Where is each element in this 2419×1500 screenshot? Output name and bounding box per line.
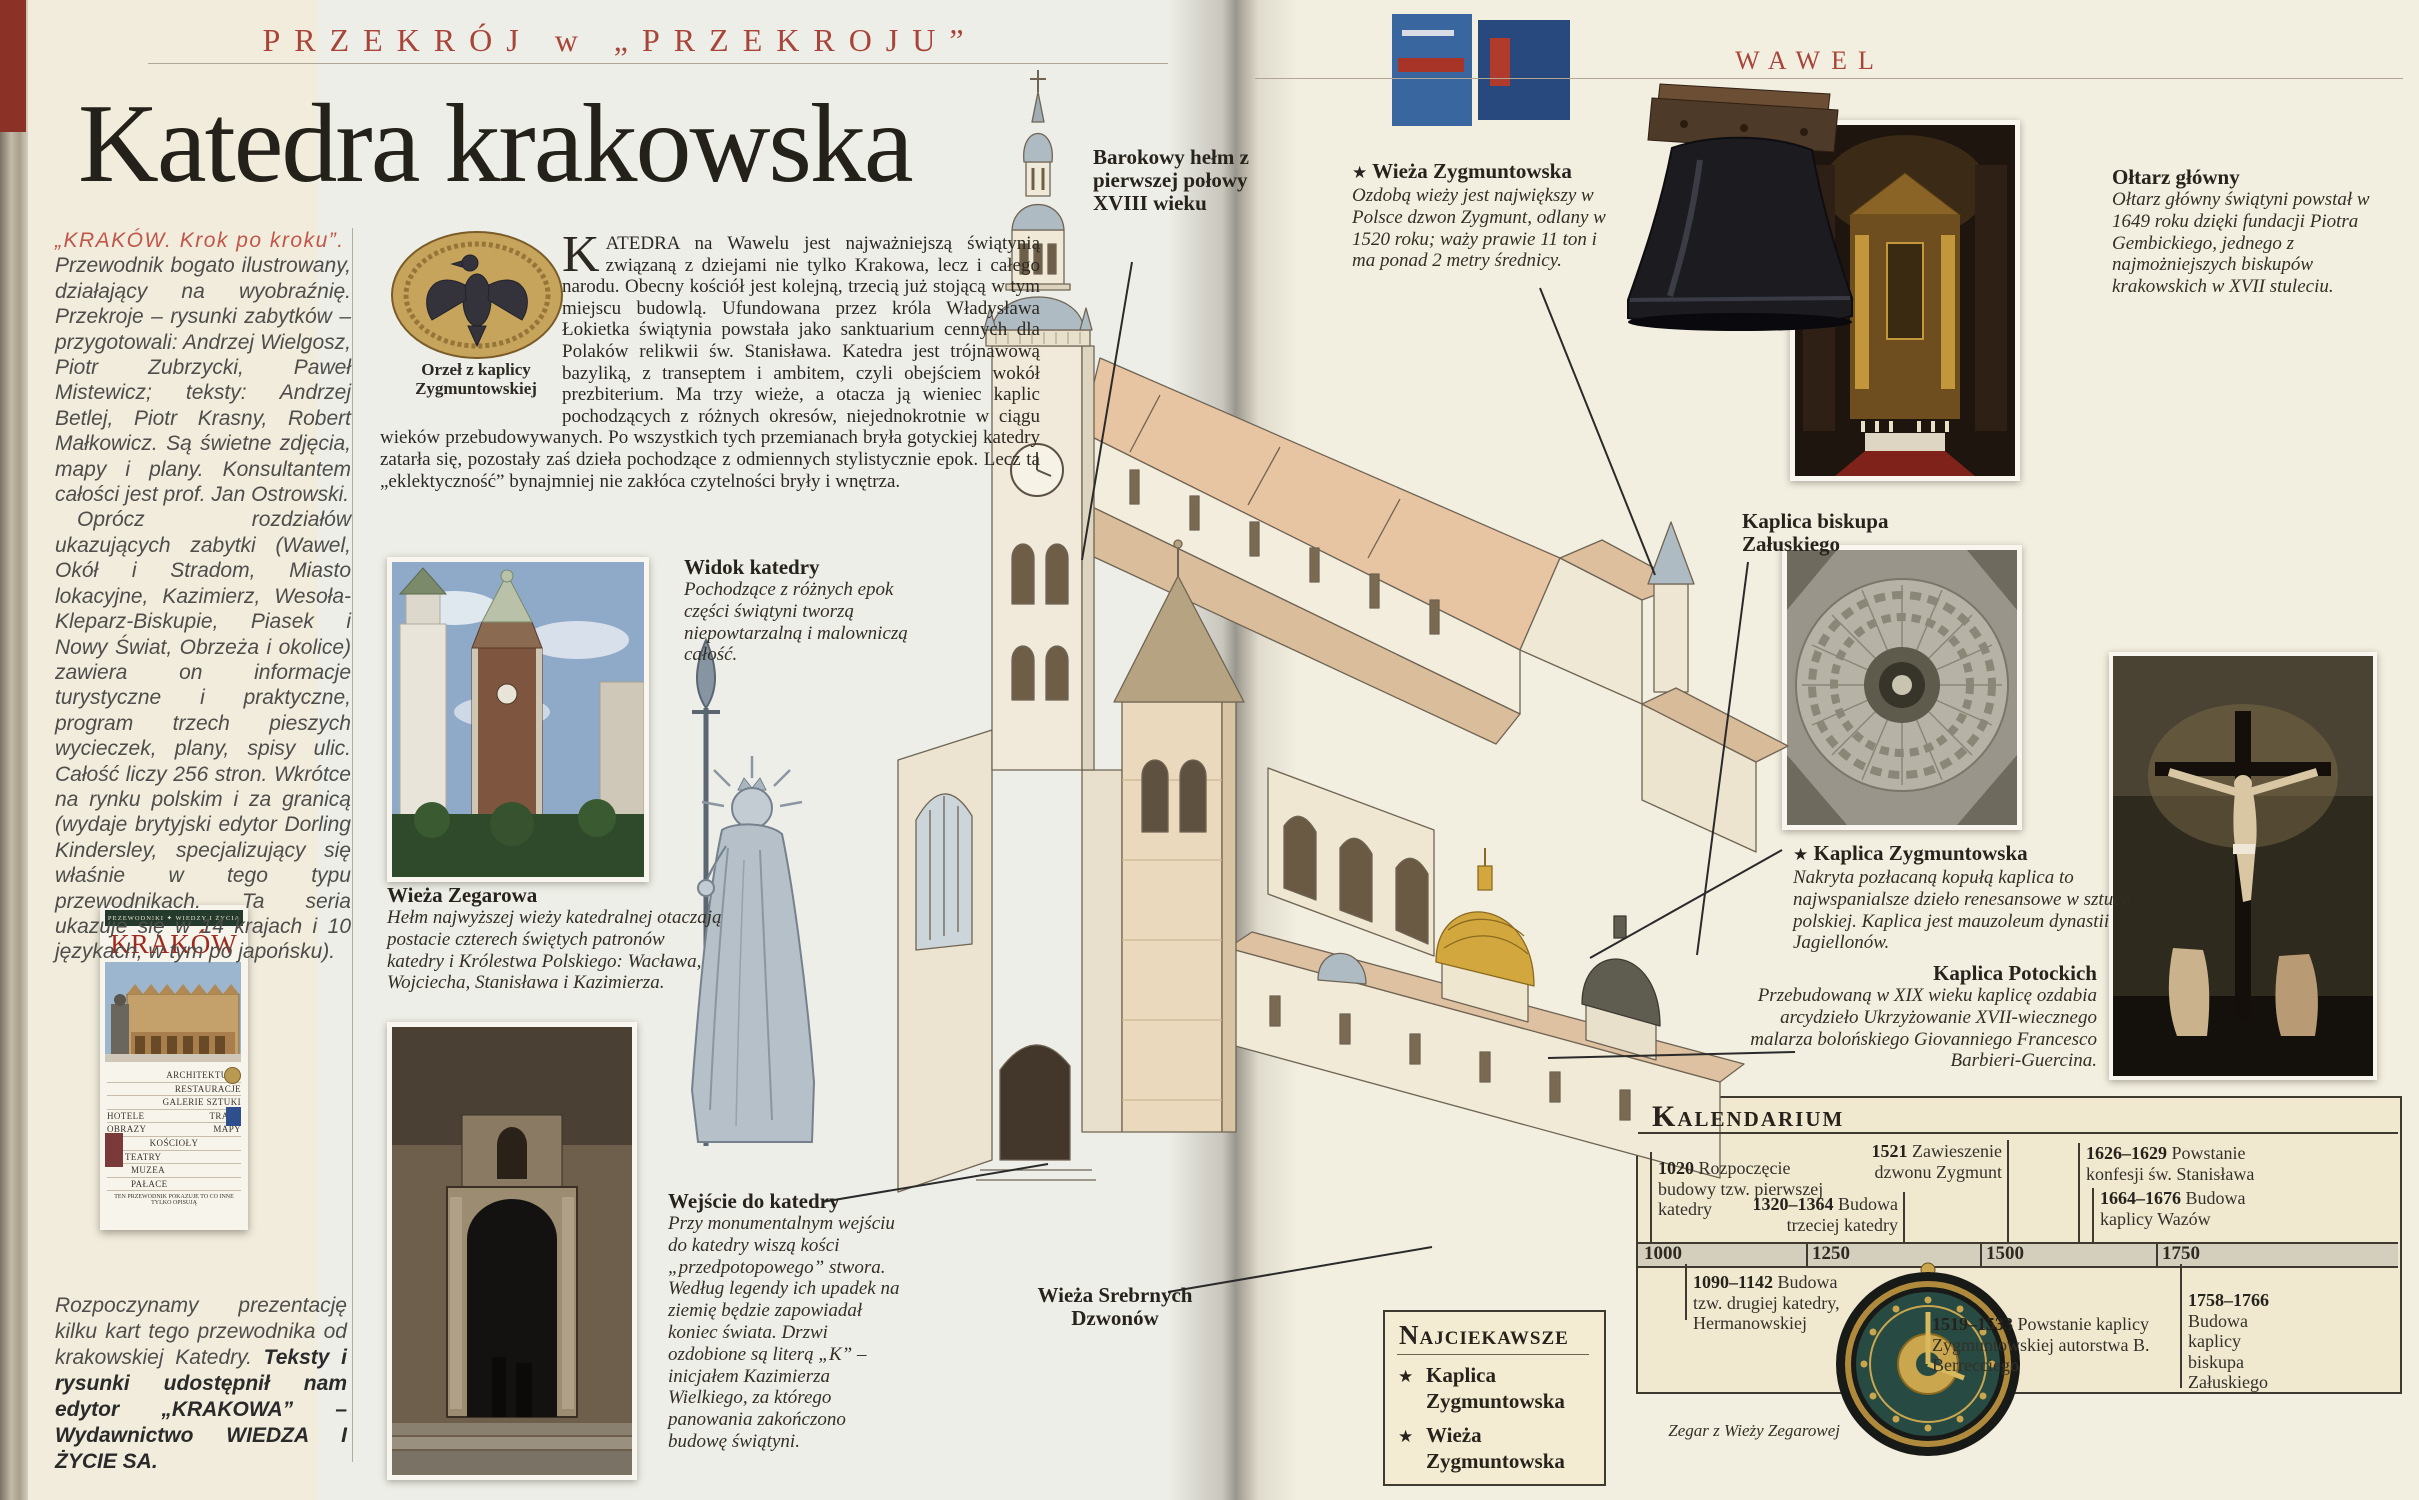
najciekawsze-title: Najciekawsze [1399,1320,1589,1351]
timeline-event: 1320–1364 Budowa trzeciej katedry [1740,1194,1898,1235]
coin-icon [224,1067,241,1084]
masthead-rule-right [1255,78,2403,79]
caption-body: Hełm najwyższej wieży katedralnej otacza… [387,907,722,994]
star-icon: ★ [1398,1362,1413,1390]
photo-cathedral-view [387,557,649,882]
caption-title: Barokowy hełm z pierwszej połowy XVIII w… [1093,146,1258,215]
timeline-divider [2156,1242,2158,1268]
caption-body: Zegar z Wieży Zegarowej [1640,1420,1840,1442]
star-icon: ★ [1398,1422,1413,1450]
caption-kaplica-potockich: Kaplica Potockich Przebudowaną w XIX wie… [1745,962,2097,1072]
cover-keyword: TEATRY [125,1151,161,1164]
timeline-event: 1519–1533 Powstanie kaplicy Zygmuntowski… [1932,1314,2160,1376]
page-bleed-fragment [1398,58,1464,72]
center-fold-shadow [1168,0,1298,1500]
cover-keyword: KOŚCIOŁY [150,1137,199,1150]
caption-wieza-zegarowa: Wieża Zegarowa Hełm najwyższej wieży kat… [387,884,722,994]
caption-wejscie: Wejście do katedry Przy monumentalnym we… [668,1190,903,1453]
painting-icon [105,1133,123,1167]
caption-body: Ozdobą wieży jest największy w Polsce dz… [1352,185,1607,272]
caption-oltarz-glowny: Ołtarz główny Ołtarz główny świątyni pow… [2112,166,2404,298]
drop-cap: K [562,233,606,276]
timeline-divider [1980,1242,1982,1268]
book-cover-photo [105,962,241,1062]
caption-body: Pochodzące z różnych epok części świątyn… [684,579,912,666]
caption-title: Ołtarz główny [2112,166,2404,189]
najciekawsze-item: Wieża Zygmuntowska [1426,1422,1576,1474]
timeline-tick [1903,1192,1905,1242]
caption-title: ★ Kaplica Zygmuntowska [1793,842,2138,867]
review-column: „KRAKÓW. Krok po kroku”. Przewodnik boga… [55,228,351,965]
timeline-tick [1650,1152,1652,1242]
timeline-year: 1250 [1812,1243,1850,1265]
page-bleed-fragment [1402,30,1454,36]
page-edge-left [0,0,28,1500]
timeline-divider [1806,1242,1808,1268]
book-cover-tagline: TEN PRZEWODNIK POKAZUJE TO CO INNE TYLKO… [105,1191,243,1206]
najciekawsze-item: Kaplica Zygmuntowska [1426,1362,1576,1414]
timeline-event: 1664–1676 Budowa kaplicy Wazów [2100,1188,2262,1229]
timeline-event: 1090–1142 Budowa tzw. drugiej katedry, H… [1693,1272,1861,1334]
masthead-left: PRZEKRÓJ w „PRZEKROJU” [150,22,1090,59]
timeline-tick [2078,1143,2080,1242]
timeline-year: 1500 [1986,1243,2024,1265]
magazine-spread: PRZEKRÓJ w „PRZEKROJU” WAWEL Katedra kra… [0,0,2419,1500]
najciekawsze-rule [1397,1354,1589,1355]
caption-body: Przy monumentalnym wejściu do katedry wi… [668,1213,903,1453]
timeline-event: 1521 Zawieszenie dzwonu Zygmunt [1856,1141,2002,1182]
review-paragraph: Przewodnik bogato ilustrowany, działając… [55,253,351,507]
caption-wieza-srebrnych: Wieża Srebrnych Dzwonów [1035,1284,1195,1330]
caption-title: Wieża Zegarowa [387,884,722,907]
caption-title: ★ Wieża Zygmuntowska [1352,160,1607,185]
caption-barokowy-helm: Barokowy hełm z pierwszej połowy XVIII w… [1093,146,1258,215]
timeline-tick [1685,1264,1687,1320]
photo-crucifixion-painting [2109,652,2377,1080]
kalendarium-rule [1638,1132,2398,1134]
book-cover-keywords: ARCHITEKTURA RESTAURACJE GALERIE SZTUKI … [105,1067,243,1191]
review-footer: Rozpoczynamy prezentację kilku kart tego… [55,1293,347,1475]
caption-kaplica-zaluskiego: Kaplica biskupa Załuskiego [1742,510,1977,556]
photo-cathedral-entrance [387,1022,637,1480]
caption-title: Wieża Srebrnych Dzwonów [1035,1284,1195,1330]
column-divider-rule [352,228,353,1462]
timeline-tick [2092,1188,2094,1242]
photo-main-altar [1790,120,2020,481]
caption-wieza-zygmuntowska: ★ Wieża Zygmuntowska Ozdobą wieży jest n… [1352,160,1607,272]
masthead-rule-left [148,63,1168,64]
caption-body: Nakryta pozłacaną kopułą kaplica to najw… [1793,867,2138,954]
cover-keyword: MUZEA [131,1164,165,1177]
cover-keyword: PAŁACE [131,1178,168,1191]
caption-widok-katedry: Widok katedry Pochodzące z różnych epok … [684,556,912,666]
masthead-right: WAWEL [1685,46,1935,76]
caption-eagle: Orzeł z kaplicy Zygmuntowskiej [394,360,558,398]
caption-body: Przebudowaną w XIX wieku kaplicę ozdabia… [1745,985,2097,1072]
cover-keyword: HOTELE [107,1110,144,1123]
caption-zegar: Zegar z Wieży Zegarowej [1640,1420,1840,1442]
review-lead: „KRAKÓW. Krok po kroku”. [55,228,351,253]
timeline-event: 1626–1629 Powstanie konfesji św. Stanisł… [2086,1143,2268,1184]
star-icon: ★ [1793,845,1808,865]
timeline-tick [2007,1140,2009,1242]
caption-title: Kaplica Potockich [1745,962,2097,985]
photo-chapel-dome-interior [1782,545,2022,830]
stamp-icon [226,1107,241,1126]
cover-keyword: RESTAURACJE [175,1083,241,1096]
review-paragraph: Oprócz rozdziałów ukazujących zabytki (W… [55,507,351,964]
caption-title: Kaplica biskupa Załuskiego [1742,510,1977,556]
timeline-year: 1000 [1644,1243,1682,1265]
caption-title: Widok katedry [684,556,912,579]
timeline-year: 1750 [2162,1243,2200,1265]
page-title: Katedra krakowska [78,84,1178,204]
page-edge-red-strip [0,0,26,132]
caption-title: Wejście do katedry [668,1190,903,1213]
timeline-tick [2180,1264,2182,1388]
timeline-event: 1758–1766 Budowa kaplicy biskupa Załuski… [2188,1290,2300,1393]
caption-kaplica-zygmuntowska: ★ Kaplica Zygmuntowska Nakryta pozłacaną… [1793,842,2138,954]
kalendarium-title: Kalendarium [1652,1100,1844,1134]
caption-body: Ołtarz główny świątyni powstał w 1649 ro… [2112,189,2404,298]
star-icon: ★ [1352,163,1367,183]
